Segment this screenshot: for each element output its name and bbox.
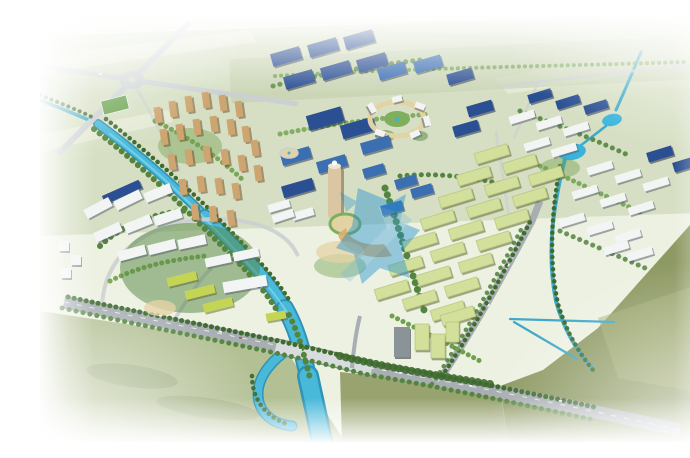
campus-plaza — [144, 300, 176, 316]
tower-glint — [332, 160, 337, 165]
landmark-tower — [328, 166, 341, 218]
aerial-masterplan-rendering: Bird's-eye master-plan rendering of an e… — [40, 16, 690, 442]
dark-midrise-tower — [394, 327, 410, 357]
ring-fountain — [395, 117, 399, 121]
rendering-canvas — [40, 16, 690, 442]
